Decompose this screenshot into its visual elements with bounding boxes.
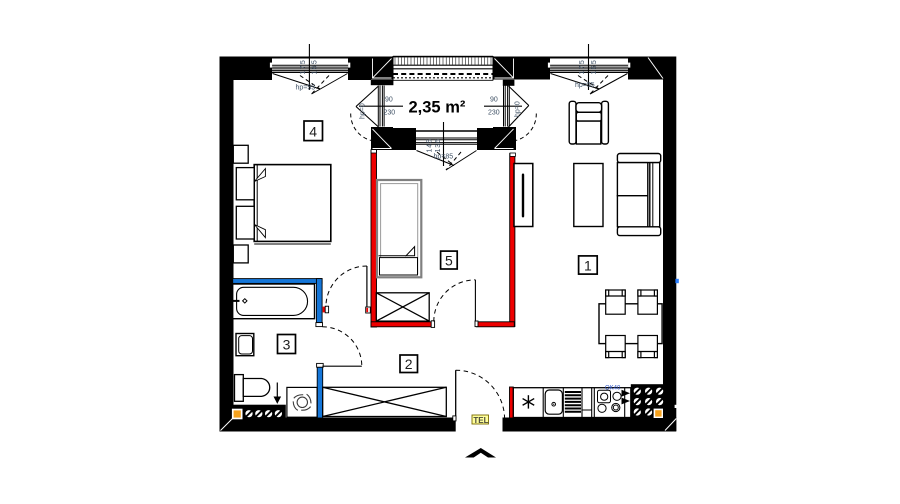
svg-text:TEL: TEL [473, 416, 488, 425]
svg-text:165: 165 [312, 59, 319, 75]
svg-text:165: 165 [591, 59, 598, 75]
svg-text:4: 4 [309, 123, 317, 139]
svg-text:175: 175 [579, 59, 586, 75]
svg-text:136: 136 [435, 138, 442, 152]
svg-text:230: 230 [384, 110, 396, 117]
svg-text:230: 230 [488, 110, 500, 117]
svg-text:OK40: OK40 [605, 386, 621, 392]
svg-text:2: 2 [405, 356, 413, 372]
svg-text:175: 175 [300, 59, 307, 75]
svg-text:hp=0: hp=0 [360, 103, 367, 119]
svg-text:hp=0: hp=0 [515, 101, 522, 117]
svg-text:hp=55: hp=55 [575, 82, 595, 89]
svg-text:3: 3 [283, 337, 291, 353]
svg-text:5: 5 [445, 253, 453, 269]
svg-text:145: 145 [427, 138, 434, 152]
svg-text:90: 90 [490, 97, 498, 104]
svg-text:2,35 m²: 2,35 m² [409, 99, 466, 117]
svg-text:hp=85: hp=85 [434, 154, 454, 161]
svg-text:90: 90 [385, 97, 393, 104]
svg-text:hp=55: hp=55 [296, 85, 316, 92]
svg-text:1: 1 [584, 258, 592, 274]
